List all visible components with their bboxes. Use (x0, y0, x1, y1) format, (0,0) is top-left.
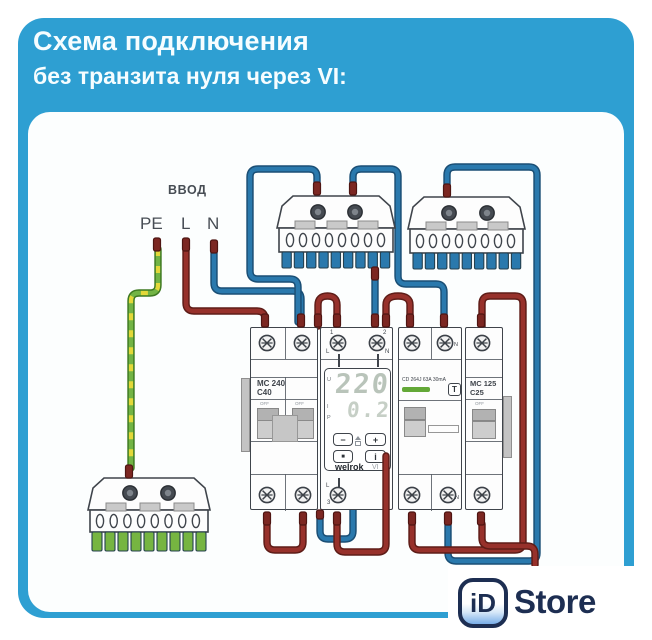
vi-display-current: 0.2 (346, 399, 392, 421)
busbar-right-band (410, 229, 523, 253)
wiring-diagram-image: Схема подключения без транзита нуля чере… (0, 0, 652, 640)
wire-neutral-bottom-loop (320, 505, 353, 539)
lock-icon (355, 441, 361, 446)
din-tab-right (503, 396, 512, 458)
rcd-label: CD 264J 63A 30mA (402, 378, 446, 383)
device-main-breaker-mc240: MC 240 C40 OFF OFF (250, 327, 318, 510)
mc125-off-label: OFF (475, 402, 484, 407)
vi-brand: welrok (335, 463, 364, 472)
vi-brand-suffix: VI (372, 464, 379, 471)
vi-front-panel: U I P 220 0.2 − + ■ i welrok VI (324, 368, 391, 471)
vi-display-voltage: 220 (334, 371, 391, 399)
mc240-toggle-bridge (272, 415, 298, 442)
vi-mode-i: I (327, 405, 329, 411)
wires-and-busbars-layer (0, 0, 652, 640)
vi-term1-num: 1 (330, 330, 333, 336)
busbar-pe-band (90, 510, 208, 532)
busbar-left-band (279, 228, 393, 252)
vi-bottom-term-num: 3 (327, 500, 330, 506)
vi-term2-letter: N (385, 349, 389, 355)
mc240-off-right: OFF (295, 402, 304, 407)
mc125-toggle (472, 421, 496, 439)
store-logo-badge: iD (458, 578, 508, 628)
store-logo-name: Store (514, 583, 596, 621)
vi-mode-u: U (327, 378, 331, 384)
lock-arrow-icon (355, 436, 361, 440)
device-voltage-relay-vi: 1 2 L N U I P 220 0.2 − + ■ i welrok VI … (320, 327, 393, 510)
rcd-toggle-slot (404, 407, 426, 420)
rcd-test-button: T (448, 383, 461, 396)
vi-term1-letter: L (326, 349, 329, 355)
mc125-model: MC 125 (470, 380, 496, 388)
rcd-toggle-link (428, 425, 459, 433)
din-tab-left (241, 378, 250, 452)
vi-info-button: i (365, 450, 386, 463)
rcd-indicator-bar (402, 387, 430, 392)
rcd-n-top-label: N (454, 343, 458, 349)
mc240-rating: C40 (257, 389, 272, 397)
vi-mode-p: P (327, 416, 331, 422)
vi-term2-num: 2 (383, 330, 386, 336)
wire-pe (131, 249, 158, 468)
rcd-toggle (404, 420, 426, 437)
device-load-breaker-mc125: MC 125 C25 OFF (465, 327, 503, 510)
vi-minus-button: − (333, 433, 353, 446)
wire-pe-yellow-stripes (131, 249, 158, 468)
device-rcd: N CD 264J 63A 30mA T N (398, 327, 462, 510)
mc240-off-left: OFF (260, 402, 269, 407)
mc125-toggle-slot (472, 409, 496, 421)
rcd-n-bottom-label: N (455, 496, 459, 502)
vi-plus-button: + (365, 433, 386, 446)
vi-bottom-letter: L (326, 483, 329, 489)
mc125-rating: C25 (470, 389, 484, 397)
